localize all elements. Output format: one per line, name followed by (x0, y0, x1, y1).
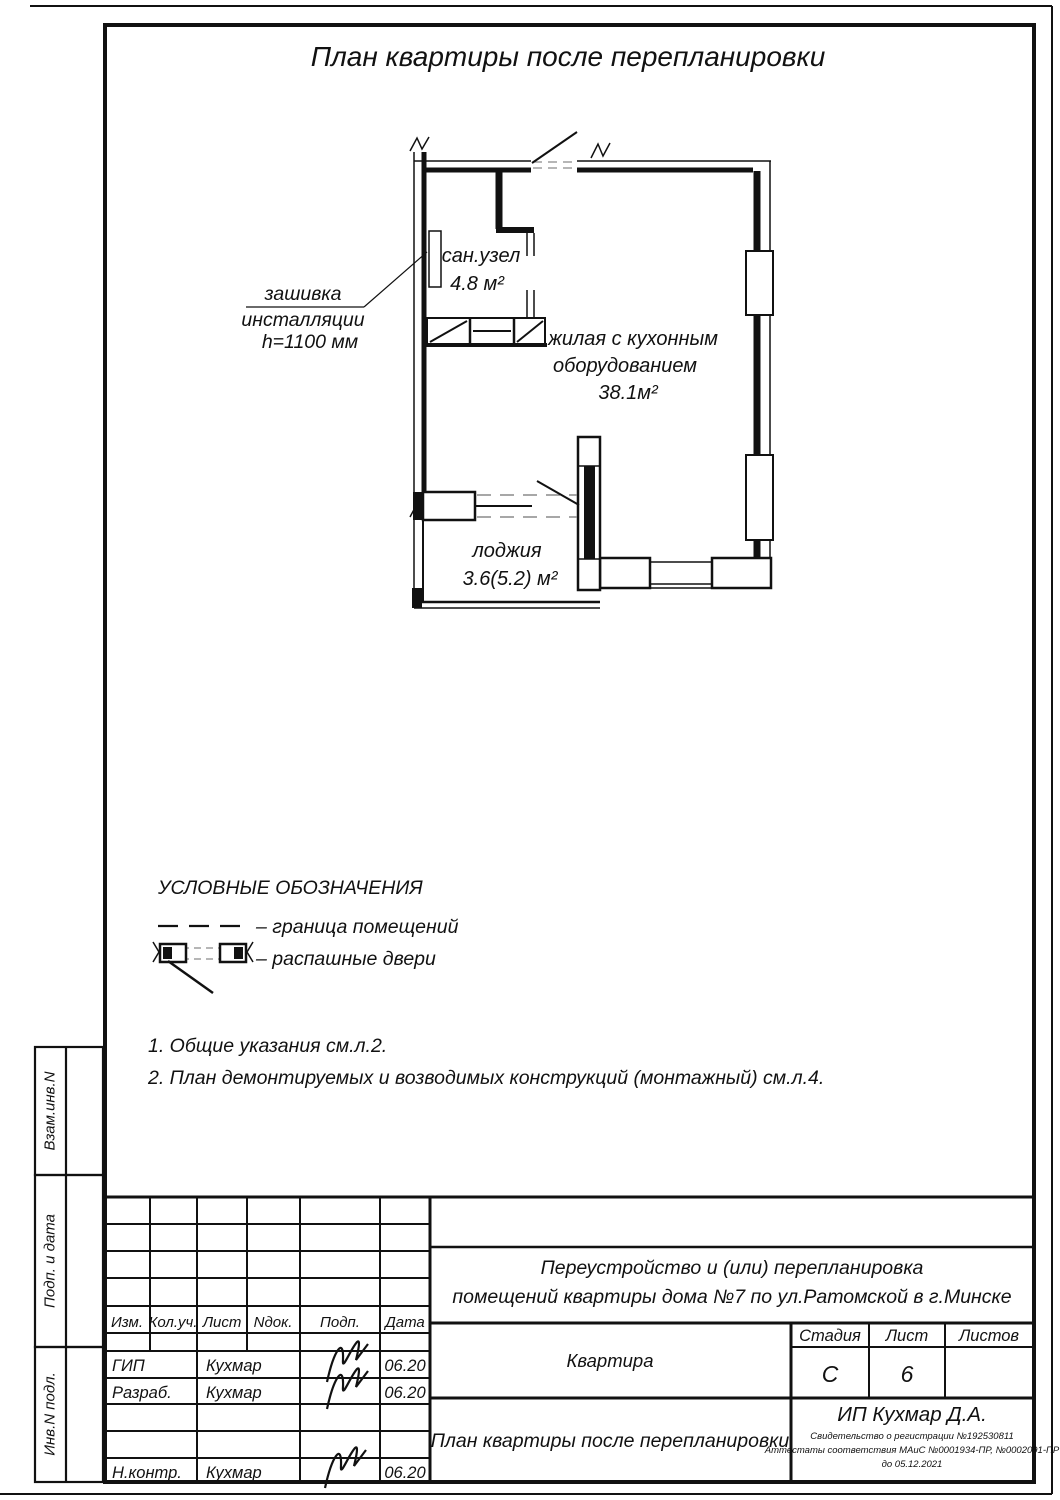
sidebar-label-vzam: Взам.инв.N (42, 1071, 59, 1150)
stamp-col-koluch: Кол.уч. (149, 1314, 198, 1331)
stage-label: Стадия (799, 1327, 861, 1345)
stamp-name-nkontr: Кухмар (206, 1464, 262, 1482)
callout-line-3: h=1100 мм (262, 331, 358, 353)
project-name-line-1: Переустройство и (или) перепланировка (541, 1257, 924, 1279)
stamp-col-data: Дата (383, 1314, 425, 1331)
legend-title: УСЛОВНЫЕ ОБОЗНАЧЕНИЯ (157, 877, 423, 899)
sheet-value: 6 (901, 1361, 914, 1387)
room-label-loggia: лоджия (471, 540, 541, 562)
wall-loggia-bottom (412, 588, 600, 608)
stamp-col-ndok: Nдок. (254, 1314, 293, 1331)
stamp-role-razrab: Разраб. (112, 1384, 172, 1402)
room-label-living-2: оборудованием (553, 355, 697, 377)
room-area-sanuzel: 4.8 м² (450, 273, 505, 295)
stamp-col-izm: Изм. (111, 1314, 143, 1331)
loggia-door-swing (537, 481, 579, 505)
project-name-line-2: помещений квартиры дома №7 по ул.Ратомск… (452, 1286, 1011, 1308)
signatures (325, 1341, 368, 1488)
sheet-label: Лист (885, 1327, 928, 1345)
loggia-boundary (413, 492, 577, 520)
stamp-col-list: Лист (202, 1314, 242, 1331)
wall-left (414, 152, 424, 608)
note-1: 1. Общие указания см.л.2. (148, 1035, 387, 1057)
legend-item-doors: – распашные двери (255, 948, 436, 970)
room-label-living-1: жилая с кухонным (547, 328, 718, 350)
sidebar-label-podp: Подп. и дата (42, 1214, 59, 1308)
legend-swing-door-symbol (153, 942, 253, 993)
company-cert-3: до 05.12.2021 (882, 1459, 943, 1470)
stamp-role-gip: ГИП (112, 1357, 145, 1375)
legend-item-boundary: – граница помещений (255, 916, 459, 938)
signature-gip (327, 1341, 368, 1382)
window-right-lower (746, 455, 773, 540)
sheet-title: План квартиры после перепланировки (431, 1430, 790, 1452)
stamp-date-nkontr: 06.20 (384, 1464, 426, 1482)
company-name: ИП Кухмар Д.А. (837, 1403, 987, 1426)
window-right-upper (746, 251, 773, 315)
stamp-name-razrab: Кухмар (206, 1384, 262, 1402)
wall-bathroom-partition (429, 170, 534, 318)
room-label-sanuzel: сан.узел (442, 245, 521, 267)
stamp-role-nkontr: Н.контр. (112, 1464, 182, 1482)
stamp-date-gip: 06.20 (384, 1357, 426, 1375)
company-cert-1: Свидетельство о регистрации №192530811 (810, 1431, 1013, 1442)
stamp-col-podp: Подп. (320, 1314, 360, 1331)
stamp-name-gip: Кухмар (206, 1357, 262, 1375)
stamp-date-razrab: 06.20 (384, 1384, 426, 1402)
note-2: 2. План демонтируемых и возводимых конст… (147, 1067, 824, 1089)
wall-loggia-partition (578, 437, 600, 590)
callout-line-2: инсталляции (241, 309, 364, 331)
installation-boxing (425, 318, 547, 345)
signature-razrab (327, 1368, 368, 1409)
drawing-sheet: План квартиры после перепланировки сан.у… (0, 0, 1060, 1500)
stage-value: С (822, 1361, 839, 1387)
texts: План квартиры после перепланировки сан.у… (42, 41, 1060, 1482)
callout-line-1: зашивка (264, 283, 342, 305)
room-area-loggia: 3.6(5.2) м² (463, 568, 559, 590)
sidebar-label-inv: Инв.N подл. (42, 1372, 59, 1456)
legend-symbols (153, 926, 253, 993)
object-name: Квартира (566, 1350, 653, 1371)
company-cert-2: Аттестаты соответствия МАиС №0001934-ПР,… (764, 1445, 1060, 1456)
window-bottom (650, 562, 712, 584)
sheets-label: Листов (958, 1327, 1019, 1345)
room-area-living: 38.1м² (598, 382, 659, 404)
page-title: План квартиры после перепланировки (311, 41, 826, 72)
